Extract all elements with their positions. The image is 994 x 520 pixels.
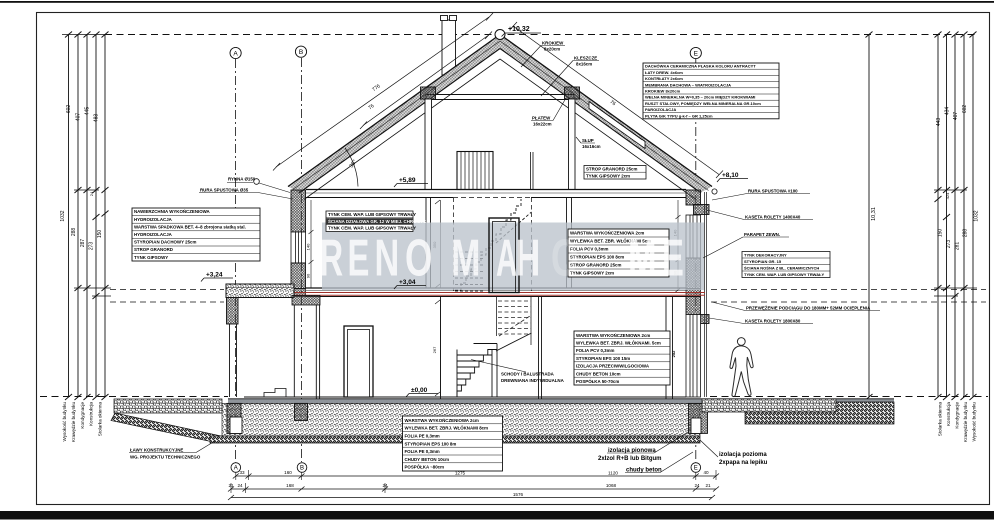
svg-text:STYROPIAN EPS 100 15m: STYROPIAN EPS 100 15m — [576, 356, 630, 361]
svg-text:MEMBRANA DACHOWA – WIATROIZOLA: MEMBRANA DACHOWA – WIATROIZOLACJA — [645, 82, 731, 87]
svg-text:WYLEWKA BET. ZBRJ. WŁÓKNAMI. 5: WYLEWKA BET. ZBRJ. WŁÓKNAMI. 5cm — [576, 341, 661, 346]
svg-text:24: 24 — [89, 191, 94, 196]
svg-text:E: E — [662, 230, 684, 287]
svg-text:21: 21 — [705, 483, 711, 488]
svg-text:STROP GRANORD: STROP GRANORD — [134, 247, 173, 252]
svg-text:434: 434 — [945, 107, 951, 116]
svg-text:B: B — [300, 466, 304, 472]
svg-text:TYNK CEM. WAP. LUB GIPSOWY TRW: TYNK CEM. WAP. LUB GIPSOWY TRWAŁY — [328, 212, 416, 217]
svg-text:STYROPIAN EPS 100 8m: STYROPIAN EPS 100 8m — [405, 441, 457, 446]
svg-text:FOLIA PE 0,3mm: FOLIA PE 0,3mm — [405, 449, 440, 454]
svg-text:273: 273 — [89, 242, 95, 251]
svg-text:A: A — [234, 466, 238, 472]
svg-text:NAWIERZCHNIA WYKOŃCZENIOWA: NAWIERZCHNIA WYKOŃCZENIOWA — [134, 209, 211, 214]
svg-text:2xIzol R+B lub Bitgum: 2xIzol R+B lub Bitgum — [598, 456, 662, 462]
svg-text:O: O — [551, 230, 578, 287]
svg-text:KROKIEW: KROKIEW — [542, 41, 564, 46]
svg-text:STROP GRANORD 25cm: STROP GRANORD 25cm — [586, 167, 637, 172]
svg-text:483: 483 — [94, 114, 100, 123]
svg-text:16x22cm: 16x22cm — [533, 122, 552, 127]
svg-text:PŁYTA G/K TYPU g-k-f – GR 1,25: PŁYTA G/K TYPU g-k-f – GR 1,25cm — [645, 113, 713, 118]
svg-text:TYNK CEM. WAP. LUB GIPSOWY TRW: TYNK CEM. WAP. LUB GIPSOWY TRWAŁY — [744, 272, 825, 277]
svg-text:288: 288 — [963, 229, 969, 238]
svg-text:H: H — [516, 229, 541, 287]
svg-text:STYROPIAN GR. 15: STYROPIAN GR. 15 — [744, 259, 782, 264]
svg-text:150: 150 — [97, 230, 103, 239]
svg-text:ŁAWY KONSTRUKCYJNE: ŁAWY KONSTRUKCYJNE — [130, 448, 183, 453]
svg-text:HYDROIZOLACJA: HYDROIZOLACJA — [134, 232, 173, 237]
svg-text:1068: 1068 — [606, 483, 617, 488]
svg-text:140: 140 — [306, 243, 311, 250]
svg-text:KONTRŁATY 2x6cm: KONTRŁATY 2x6cm — [645, 76, 683, 81]
svg-text:WARSTWA WYKOŃCZENIOWA 2cm: WARSTWA WYKOŃCZENIOWA 2cm — [576, 333, 650, 338]
svg-text:E: E — [694, 466, 698, 472]
svg-text:E: E — [348, 230, 370, 287]
svg-text:PŁATEW: PŁATEW — [532, 116, 551, 121]
svg-text:KROKIEW 8x20cm: KROKIEW 8x20cm — [645, 89, 681, 94]
svg-text:ŚCIANA DZIAŁOWA GR. 12 W MIEJ.: ŚCIANA DZIAŁOWA GR. 12 W MIEJ. CHROMYCH — [328, 219, 429, 224]
svg-text:ŚCIANA NOŚNA Z BL. CERAMICZNYC: ŚCIANA NOŚNA Z BL. CERAMICZNYCH — [744, 265, 819, 270]
svg-text:407: 407 — [76, 113, 82, 122]
svg-text:DACHÓWKA CERAMICZNA PŁASKA KOL: DACHÓWKA CERAMICZNA PŁASKA KOLORU ANTRAC… — [645, 64, 756, 69]
svg-text:1032: 1032 — [974, 210, 980, 221]
svg-text:168: 168 — [286, 483, 294, 488]
svg-text:+5,89: +5,89 — [399, 177, 416, 184]
svg-text:602: 602 — [962, 105, 968, 114]
svg-text:+10,32: +10,32 — [508, 26, 530, 33]
svg-text:IZOLACJA PRZECIWWILGOCIOWA: IZOLACJA PRZECIWWILGOCIOWA — [576, 364, 650, 369]
svg-text:Konstrukcja: Konstrukcja — [946, 402, 951, 426]
svg-text:A: A — [233, 50, 238, 57]
svg-text:Wysokość budynku: Wysokość budynku — [972, 402, 977, 442]
svg-text:21: 21 — [228, 483, 234, 488]
svg-text:KLESZCZE: KLESZCZE — [574, 56, 597, 61]
svg-text:O: O — [405, 230, 432, 287]
svg-text:8x20cm: 8x20cm — [544, 47, 560, 52]
svg-text:POSPÓŁKA 50-70cm: POSPÓŁKA 50-70cm — [576, 379, 619, 384]
svg-text:N: N — [375, 229, 400, 287]
svg-text:407: 407 — [953, 112, 959, 121]
svg-text:24: 24 — [237, 483, 243, 488]
svg-text:281: 281 — [955, 242, 961, 251]
svg-text:izolacja pozioma: izolacja pozioma — [719, 452, 767, 458]
svg-text:HYDROIZOLACJA: HYDROIZOLACJA — [134, 217, 173, 222]
svg-text:2xpapa na lepiku: 2xpapa na lepiku — [719, 460, 768, 466]
svg-text:424: 424 — [945, 192, 950, 199]
svg-text:WARSTWA SPADKOWA BET. 4–8 zbro: WARSTWA SPADKOWA BET. 4–8 zbrojona siatk… — [134, 224, 246, 229]
svg-text:SŁUP: SŁUP — [582, 138, 594, 143]
svg-text:Krawędzie budynku: Krawędzie budynku — [963, 402, 968, 443]
svg-text:RYNNA Ø150: RYNNA Ø150 — [228, 177, 256, 182]
svg-text:160: 160 — [284, 470, 292, 475]
svg-text:40: 40 — [703, 470, 709, 475]
svg-text:M: M — [628, 229, 657, 287]
svg-text:33: 33 — [239, 470, 245, 475]
svg-text:TYNK GIPSOWY 2cm: TYNK GIPSOWY 2cm — [586, 173, 630, 178]
svg-text:RURA SPUSTOWA Ø35: RURA SPUSTOWA Ø35 — [200, 188, 249, 193]
svg-text:±0,00: ±0,00 — [411, 387, 428, 394]
svg-text:RUSZT STALOWY, POMIĘDZY WEŁNA: RUSZT STALOWY, POMIĘDZY WEŁNA MINERALNA … — [645, 101, 761, 106]
svg-text:PAROIZOLACJA: PAROIZOLACJA — [645, 107, 676, 112]
svg-text:A: A — [496, 229, 517, 287]
svg-text:PRZEWĘŻENIE PODCIĄGU DO 180MM+: PRZEWĘŻENIE PODCIĄGU DO 180MM+ 52MM OCIE… — [746, 306, 871, 311]
svg-text:WEŁNA MINERALNA W=0,35 – 20cm: WEŁNA MINERALNA W=0,35 – 20cm MIĘDZY KRO… — [645, 95, 755, 100]
svg-text:90: 90 — [306, 273, 311, 278]
svg-text:Konstrukcja: Konstrukcja — [89, 402, 94, 426]
svg-text:Stolarka okienna: Stolarka okienna — [98, 402, 103, 437]
svg-text:Stolarka okienna: Stolarka okienna — [938, 402, 943, 437]
svg-text:R: R — [320, 230, 344, 287]
svg-text:150: 150 — [938, 229, 944, 238]
svg-text:287: 287 — [80, 239, 86, 248]
svg-text:WARSTWA WYKOŃCZENIOWA 2cm: WARSTWA WYKOŃCZENIOWA 2cm — [405, 418, 479, 423]
svg-text:ŁATY DREW. 4x6cm: ŁATY DREW. 4x6cm — [645, 70, 683, 75]
svg-text:CHUDY BETON 10cm: CHUDY BETON 10cm — [576, 371, 621, 376]
svg-text:DREWNIANA INDYWIDUALNA: DREWNIANA INDYWIDUALNA — [501, 378, 565, 383]
svg-text:10,31: 10,31 — [871, 207, 877, 221]
svg-text:E: E — [694, 50, 699, 57]
svg-text:24: 24 — [382, 483, 388, 488]
svg-text:M: M — [451, 230, 480, 287]
svg-text:602: 602 — [66, 105, 72, 114]
svg-text:FOLIA PCV 0,3mm: FOLIA PCV 0,3mm — [576, 348, 614, 353]
svg-text:288: 288 — [71, 228, 77, 237]
svg-text:273: 273 — [946, 240, 952, 249]
svg-text:16x16cm: 16x16cm — [582, 144, 601, 149]
svg-text:SCHODY I BALUSTRADA: SCHODY I BALUSTRADA — [501, 372, 555, 377]
svg-text:Krawędzie budynku: Krawędzie budynku — [71, 402, 76, 443]
svg-text:Wysokość budynku: Wysokość budynku — [62, 402, 67, 442]
svg-text:TYNK DEKORACYJNY: TYNK DEKORACYJNY — [744, 252, 787, 257]
svg-text:+3,24: +3,24 — [206, 272, 223, 279]
svg-text:PARAPET ZEWN.: PARAPET ZEWN. — [744, 232, 780, 237]
svg-text:POSPÓŁKA ~80cm: POSPÓŁKA ~80cm — [405, 465, 445, 470]
svg-text:1576: 1576 — [513, 492, 524, 497]
svg-text:WYLEWKA BET. ZBRJ. WŁÓKNAMI 8c: WYLEWKA BET. ZBRJ. WŁÓKNAMI 8cm — [405, 426, 489, 431]
svg-text:1120: 1120 — [608, 471, 618, 476]
svg-text:TYNK GIPSOWY: TYNK GIPSOWY — [134, 255, 168, 260]
svg-text:443: 443 — [936, 118, 942, 127]
svg-text:KASETA ROLETY 1800X80: KASETA ROLETY 1800X80 — [745, 319, 801, 324]
svg-text:1032: 1032 — [60, 210, 66, 221]
svg-text:252: 252 — [671, 350, 676, 357]
svg-text:WG. PROJEKTU TECHNICZNEGO: WG. PROJEKTU TECHNICZNEGO — [130, 455, 201, 460]
svg-text:24: 24 — [694, 483, 700, 488]
svg-text:STYROPIAN DACHOWY 25cm: STYROPIAN DACHOWY 25cm — [134, 240, 196, 245]
svg-text:CHUDY BETON 10cm: CHUDY BETON 10cm — [405, 457, 450, 462]
svg-text:445: 445 — [85, 107, 91, 116]
svg-text:267: 267 — [432, 346, 437, 353]
svg-text:8x16cm: 8x16cm — [576, 62, 592, 67]
svg-text:FOLIA PE 0,3mm: FOLIA PE 0,3mm — [405, 434, 440, 439]
svg-text:B: B — [299, 49, 303, 56]
svg-text:Kondygnacje: Kondygnacje — [955, 402, 960, 429]
svg-text:KASETA ROLETY 1400X40: KASETA ROLETY 1400X40 — [745, 215, 801, 220]
svg-text:RURA SPUSTOWA #100: RURA SPUSTOWA #100 — [748, 189, 798, 194]
svg-text:+8,10: +8,10 — [722, 172, 739, 179]
svg-text:Kondygnacje: Kondygnacje — [80, 402, 85, 429]
